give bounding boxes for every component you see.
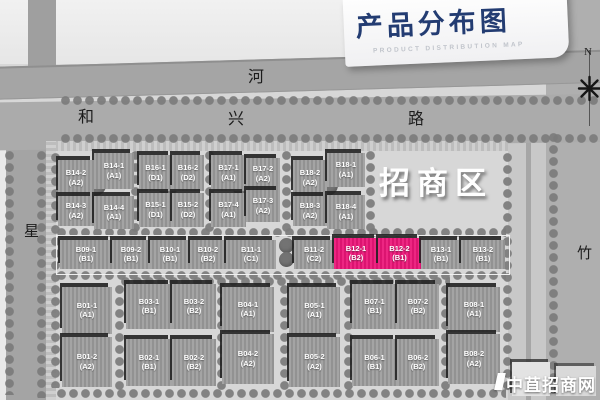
building-unit-label: (A2) — [80, 363, 95, 371]
building-id-label: B08-1 — [464, 301, 484, 309]
building-unit-label: (B1) — [142, 363, 157, 371]
building-plot-B03-2: B03-2(B2) — [172, 284, 216, 329]
building-id-label: B03-2 — [184, 298, 204, 306]
building-plot-B17-1: B17-1(A1) — [211, 155, 246, 191]
building-unit-label: (A2) — [307, 363, 322, 371]
tree-column — [281, 150, 292, 232]
building-plot-B01-1: B01-1(A1) — [62, 287, 112, 334]
tree-column — [548, 132, 559, 394]
building-unit-label: (A1) — [339, 171, 354, 179]
building-unit-label: (A2) — [303, 212, 318, 220]
building-id-label: B13-2 — [473, 246, 493, 254]
building-plot-B18-1: B18-1(A1) — [327, 153, 365, 187]
building-id-label: B17-2 — [253, 165, 273, 173]
building-plot-B04-2: B04-2(A2) — [222, 334, 274, 384]
building-id-label: B16-2 — [178, 164, 198, 172]
building-id-label: B02-1 — [139, 354, 159, 362]
title-panel: 产品分布图 PRODUCT DISTRIBUTION MAP — [343, 0, 570, 67]
building-plot-B18-2: B18-2(A2) — [293, 160, 327, 196]
building-plot-B10-2: B10-2(B2) — [190, 240, 226, 269]
building-plot-B04-1: B04-1(A1) — [222, 287, 274, 332]
building-id-label: B03-1 — [139, 298, 159, 306]
building-plot-B03-1: B03-1(B1) — [126, 284, 172, 329]
building-unit-label: (A2) — [303, 179, 318, 187]
tree-row — [60, 95, 600, 106]
building-id-label: B12-2 — [389, 245, 409, 253]
building-id-label: B01-1 — [77, 302, 97, 310]
building-plot-B13-1: B13-1(B1) — [421, 240, 461, 269]
building-unit-label: (A1) — [107, 172, 122, 180]
building-unit-label: (B1) — [367, 363, 382, 371]
building-id-label: B06-2 — [408, 354, 428, 362]
building-id-label: B16-1 — [145, 164, 165, 172]
building-id-label: B06-1 — [364, 354, 384, 362]
building-unit-label: (D2) — [181, 211, 196, 219]
building-id-label: B12-1 — [346, 245, 366, 253]
building-id-label: B08-2 — [464, 350, 484, 358]
building-id-label: B14-4 — [104, 204, 124, 212]
building-id-label: B10-1 — [160, 246, 180, 254]
building-plot-B17-4: B17-4(A1) — [211, 193, 246, 227]
building-unit-label: (A1) — [307, 311, 322, 319]
site-plan-map: B14-1(A1)B14-2(A2)B14-3(A2)B14-4(A1)B16-… — [0, 0, 600, 400]
building-plot-B15-1: B15-1(D1) — [139, 193, 172, 227]
hexing-road-char-he: 和 — [78, 110, 94, 126]
building-unit-label: (B1) — [434, 255, 449, 263]
building-id-label: B04-2 — [238, 350, 258, 358]
building-unit-label: (B1) — [476, 255, 491, 263]
building-plot-B05-2: B05-2(A2) — [289, 337, 340, 387]
building-unit-label: (A2) — [256, 207, 271, 215]
building-id-label: B14-3 — [66, 202, 86, 210]
building-id-label: B13-1 — [431, 246, 451, 254]
building-plot-B08-1: B08-1(A1) — [448, 287, 500, 332]
building-plot-B06-2: B06-2(B2) — [397, 339, 439, 386]
building-unit-label: (A1) — [107, 213, 122, 221]
building-plot-B01-2: B01-2(A2) — [62, 337, 112, 387]
building-unit-label: (B1) — [124, 255, 139, 263]
building-plot-B05-1: B05-1(A1) — [289, 287, 340, 334]
building-unit-label: (A1) — [339, 213, 354, 221]
building-id-label: B17-4 — [218, 201, 238, 209]
building-unit-label: (A1) — [80, 311, 95, 319]
building-id-label: B17-1 — [218, 164, 238, 172]
building-id-label: B05-1 — [304, 302, 324, 310]
building-plot-B17-3: B17-3(A2) — [246, 190, 280, 222]
building-unit-label: (B1) — [142, 307, 157, 315]
west-road-label: 星 — [24, 224, 39, 239]
building-id-label: B07-1 — [364, 298, 384, 306]
building-unit-label: (A2) — [69, 179, 84, 187]
building-plot-B18-4: B18-4(A1) — [327, 195, 365, 229]
compass-star-icon — [576, 75, 600, 102]
building-plot-B11-2: B11-2(C2) — [294, 240, 334, 269]
building-unit-label: (D1) — [148, 174, 163, 182]
building-id-label: B18-1 — [336, 161, 356, 169]
building-unit-label: (B1) — [163, 255, 178, 263]
building-plot-B10-1: B10-1(B1) — [150, 240, 190, 269]
river-road-label: 河 — [248, 70, 264, 86]
building-id-label: B18-2 — [300, 169, 320, 177]
building-unit-label: (B1) — [392, 254, 407, 262]
building-unit-label: (A2) — [69, 212, 84, 220]
building-unit-label: (A1) — [467, 310, 482, 318]
building-plot-B12-2: B12-2(B1) — [378, 238, 421, 269]
building-unit-label: (B2) — [411, 307, 426, 315]
building-plot-B18-3: B18-3(A2) — [293, 196, 327, 226]
investment-zone-label: 招商区 — [379, 168, 493, 199]
building-unit-label: (D2) — [181, 174, 196, 182]
building-plot-B17-2: B17-2(A2) — [246, 158, 280, 190]
watermark-text: 中苴招商网 — [506, 371, 596, 396]
building-id-label: B07-2 — [408, 298, 428, 306]
building-unit-label: (A2) — [241, 360, 256, 368]
building-id-label: B15-1 — [145, 201, 165, 209]
building-unit-label: (A1) — [241, 310, 256, 318]
tree-row — [60, 133, 600, 144]
building-id-label: B02-2 — [184, 354, 204, 362]
building-id-label: B14-1 — [104, 162, 124, 170]
building-unit-label: (B2) — [187, 307, 202, 315]
building-id-label: B14-2 — [66, 169, 86, 177]
building-plot-B02-2: B02-2(B2) — [172, 339, 216, 386]
east-road-label: 竹 — [577, 246, 592, 261]
building-id-label: B09-1 — [76, 246, 96, 254]
building-plot-B09-2: B09-2(B1) — [112, 240, 150, 269]
hexing-road-char-xing: 兴 — [228, 112, 244, 128]
building-unit-label: (A1) — [221, 174, 236, 182]
building-plot-B14-1: B14-1(A1) — [94, 153, 134, 189]
building-plot-B16-2: B16-2(D2) — [172, 155, 204, 191]
building-plot-B14-2: B14-2(A2) — [58, 160, 94, 196]
building-plot-B14-4: B14-4(A1) — [94, 196, 134, 229]
building-id-label: B04-1 — [238, 301, 258, 309]
building-plot-B07-2: B07-2(B2) — [397, 284, 439, 329]
building-plot-B02-1: B02-1(B1) — [126, 339, 172, 386]
building-id-label: B18-3 — [300, 202, 320, 210]
page-subtitle: PRODUCT DISTRIBUTION MAP — [359, 40, 539, 55]
building-unit-label: (C1) — [244, 255, 259, 263]
building-unit-label: (B2) — [349, 254, 364, 262]
tree-column — [36, 150, 47, 398]
building-id-label: B11-2 — [304, 246, 324, 254]
building-plot-B15-2: B15-2(D2) — [172, 193, 204, 227]
building-plot-B13-2: B13-2(B1) — [461, 240, 505, 269]
building-id-label: B01-2 — [77, 353, 97, 361]
page-title: 产品分布图 — [355, 8, 511, 42]
building-id-label: B17-3 — [253, 197, 273, 205]
building-unit-label: (B2) — [201, 255, 216, 263]
building-id-label: B10-2 — [198, 246, 218, 254]
building-unit-label: (A2) — [256, 175, 271, 183]
building-id-label: B15-2 — [178, 201, 198, 209]
building-plot-B11-1: B11-1(C1) — [226, 240, 276, 269]
building-plot-B09-1: B09-1(B1) — [60, 240, 112, 269]
building-unit-label: (B2) — [187, 363, 202, 371]
building-unit-label: (D1) — [148, 211, 163, 219]
building-id-label: B05-2 — [304, 353, 324, 361]
hexing-road-char-lu: 路 — [408, 112, 424, 128]
tree-column — [114, 284, 125, 390]
building-plot-B06-1: B06-1(B1) — [352, 339, 397, 386]
tree-column — [365, 150, 376, 232]
building-plot-B08-2: B08-2(A2) — [448, 334, 500, 384]
building-id-label: B09-2 — [121, 246, 141, 254]
compass-north-label: N — [584, 46, 592, 58]
building-plot-B12-1: B12-1(B2) — [334, 238, 378, 269]
building-unit-label: (A2) — [467, 360, 482, 368]
building-unit-label: (C2) — [307, 255, 322, 263]
east-road-median — [526, 128, 531, 400]
building-plot-B07-1: B07-1(B1) — [352, 284, 397, 329]
building-unit-label: (B1) — [367, 307, 382, 315]
building-plot-B16-1: B16-1(D1) — [139, 155, 172, 191]
building-unit-label: (B1) — [79, 255, 94, 263]
building-plot-B14-3: B14-3(A2) — [58, 196, 94, 226]
tree-column — [4, 150, 15, 395]
building-unit-label: (B2) — [411, 363, 426, 371]
north-vertical-road — [28, 0, 56, 66]
building-id-label: B18-4 — [336, 203, 356, 211]
building-id-label: B11-1 — [241, 246, 261, 254]
building-unit-label: (A1) — [221, 211, 236, 219]
